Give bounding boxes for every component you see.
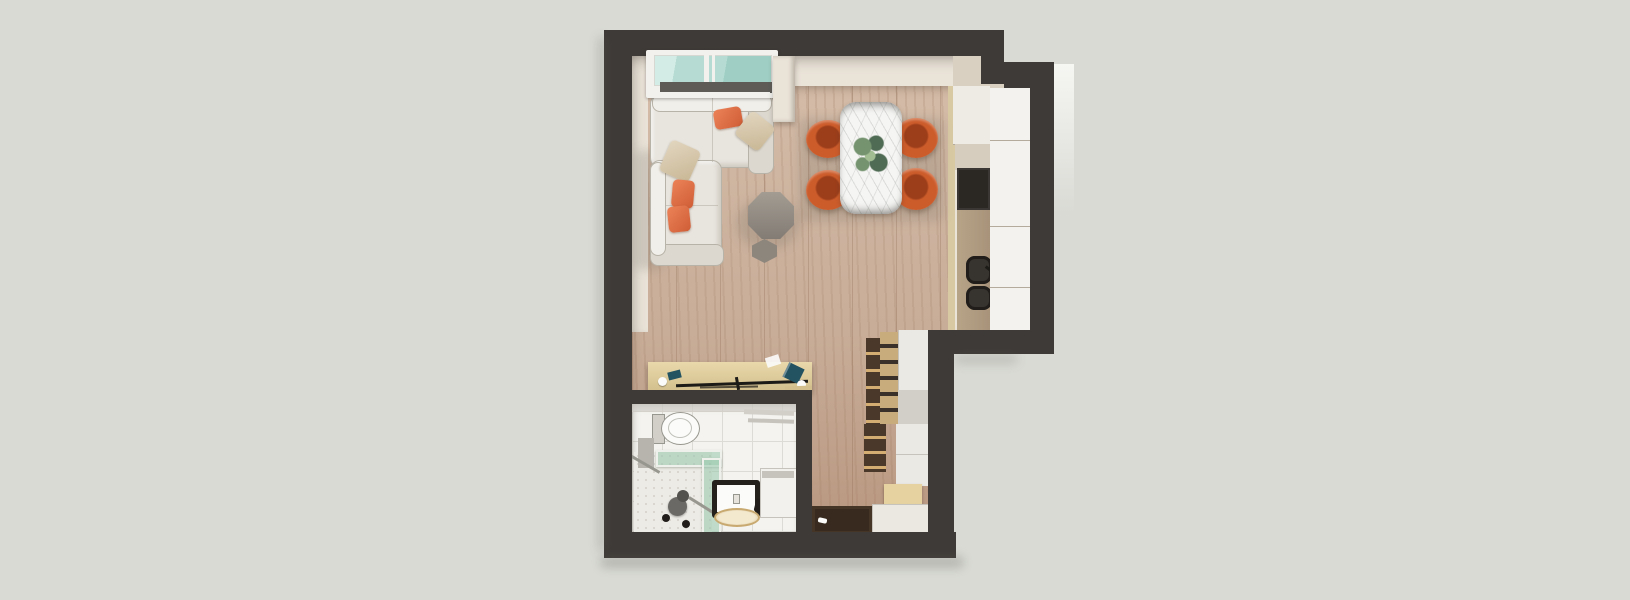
exterior-shadow-left [598, 36, 606, 552]
toilet-bowl [661, 412, 700, 445]
window-inner-sill [654, 92, 770, 98]
lower-cabinet [896, 424, 928, 486]
partition-stub [773, 56, 795, 122]
sofa-backrest-left [650, 162, 666, 256]
exterior-shadow-step [954, 354, 1018, 364]
wall-bottom [604, 532, 956, 558]
shower-chair-wheel [682, 520, 690, 528]
vanity-basin [714, 508, 760, 527]
soap-dispenser [733, 494, 740, 504]
counter-seam [990, 226, 1030, 227]
pillow-orange-lower-2 [667, 205, 692, 233]
window-mullion [704, 55, 709, 84]
wall-right-lower [928, 354, 954, 534]
sofa-cushion-seam [712, 98, 713, 162]
open-niche [864, 424, 886, 472]
wall-bathroom-right [796, 390, 812, 532]
sink-basin [966, 286, 992, 310]
washing-machine [760, 468, 798, 518]
entry-tile-floor [872, 504, 928, 534]
exterior-shadow-bottom [600, 556, 964, 568]
wall-bathroom-top [632, 390, 812, 404]
wardrobe-shelf-strip [880, 332, 898, 424]
counter-seam [990, 287, 1030, 288]
wall-step-top-right [981, 48, 1004, 84]
kitchen-counter-face [990, 88, 1030, 332]
apartment-floor-plan [0, 0, 1630, 600]
wall-left [604, 30, 632, 558]
wall-mid-divider [928, 330, 1054, 354]
oven-appliance [957, 168, 990, 210]
cabinet-seam [896, 454, 928, 455]
shower-chair-back [677, 490, 689, 502]
table-plant [850, 134, 892, 176]
washer-control-panel [762, 471, 794, 478]
exterior-wall-face [1054, 64, 1074, 214]
wardrobe-top [898, 330, 929, 392]
counter-seam [990, 140, 1030, 141]
coffee-table [748, 192, 794, 239]
toilet-seat-ring [668, 418, 692, 438]
wall-return-top-right [1004, 62, 1054, 88]
window-mullion [712, 55, 715, 84]
wall-right-upper [1030, 88, 1054, 334]
slipper [818, 517, 828, 524]
entry-mat [812, 506, 872, 534]
kitchen-counter-top [953, 86, 990, 145]
decor-ball [658, 377, 667, 386]
wardrobe-mid-gray [898, 390, 928, 426]
shower-chair-wheel [662, 514, 670, 522]
kitchen-mid-cabinet [955, 144, 990, 170]
